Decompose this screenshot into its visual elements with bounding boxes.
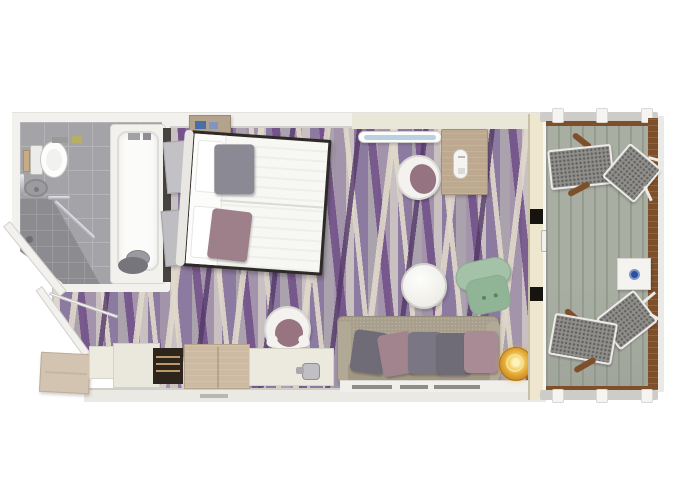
minibar-recess [153, 348, 183, 384]
desk-item-detail [458, 168, 465, 174]
double-bed [182, 130, 331, 275]
desk-item [453, 149, 468, 179]
wall-shelf-glass [364, 135, 436, 140]
sofa [337, 316, 499, 384]
rail-post [641, 389, 653, 403]
desk-item-detail [458, 156, 465, 158]
green-armchair-seat [464, 273, 513, 317]
window-frame-slit [352, 385, 392, 389]
rail-post [596, 389, 608, 403]
rail-post [596, 108, 608, 123]
window-frame-dark [530, 209, 543, 224]
balcony-divider-wall [528, 114, 546, 400]
grab-bar-short [48, 196, 70, 200]
wall-shelf [358, 131, 442, 143]
desk [441, 129, 488, 195]
vanity-counter [249, 348, 334, 386]
bathtub-controls-2 [143, 133, 151, 140]
bed-throw-pillow [214, 144, 254, 194]
rail-post [552, 389, 564, 403]
window-frame-slit [400, 385, 428, 389]
bed-throw-pillow [207, 208, 253, 263]
balcony-side-table [617, 258, 651, 290]
balcony-rail-right-outer [658, 116, 664, 392]
cabinet-wood [184, 344, 250, 389]
window-frame-slit [434, 385, 480, 389]
window-frame-dark [530, 287, 543, 301]
bathtub-controls [128, 133, 140, 140]
desk-chair-cushion [407, 161, 440, 197]
vanity-chair [264, 306, 311, 353]
cabinet-beige-angled [39, 352, 91, 395]
cabinet-cream-small [89, 346, 114, 379]
gold-ottoman-ring [506, 354, 524, 372]
seat-button [482, 295, 487, 300]
bathroom-accessory [72, 136, 82, 143]
cabinet-line [45, 371, 87, 375]
bath-mat [118, 257, 148, 274]
seat-button [493, 293, 498, 298]
round-side-table [401, 263, 447, 309]
toilet-bowl [40, 141, 68, 178]
toilet-bowl-inner [46, 149, 62, 171]
kettle-spout [296, 367, 304, 374]
kettle [302, 363, 320, 380]
window-mullion [200, 394, 228, 398]
window-sill [340, 380, 534, 392]
minibar-shelf [156, 356, 180, 358]
desk-chair [396, 155, 441, 200]
floorplan-canvas [0, 0, 680, 491]
shelf-item-blue [195, 121, 206, 129]
table-blue-dot [629, 269, 640, 280]
washbasin-drain [34, 187, 39, 192]
washbasin [24, 179, 48, 197]
rail-post [552, 108, 564, 123]
desk-wall-segment [352, 113, 546, 129]
minibar-shelf [156, 363, 180, 365]
minibar-shelf [156, 370, 180, 372]
bathroom-fixture [52, 137, 68, 143]
sofa-pillow [464, 331, 498, 373]
shelf-item-blue-2 [209, 122, 218, 129]
cabinet-seam [217, 347, 219, 388]
toilet-paper-holder [23, 150, 30, 172]
